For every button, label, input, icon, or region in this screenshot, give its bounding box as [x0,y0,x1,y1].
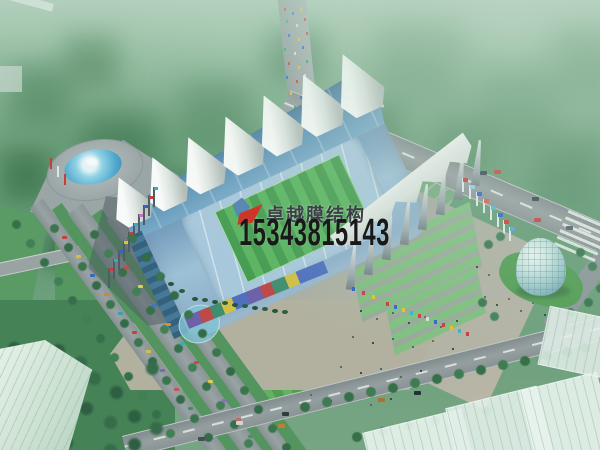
fountain-jet [86,158,98,166]
parked-cars-avenue [0,0,5,3]
building-right-edge [537,306,600,378]
building-bottom-right [519,372,600,450]
stadium-aerial-rendering: 卓越膜结构 15343815143 [0,0,600,450]
left-edge-pale-patch [0,66,22,92]
